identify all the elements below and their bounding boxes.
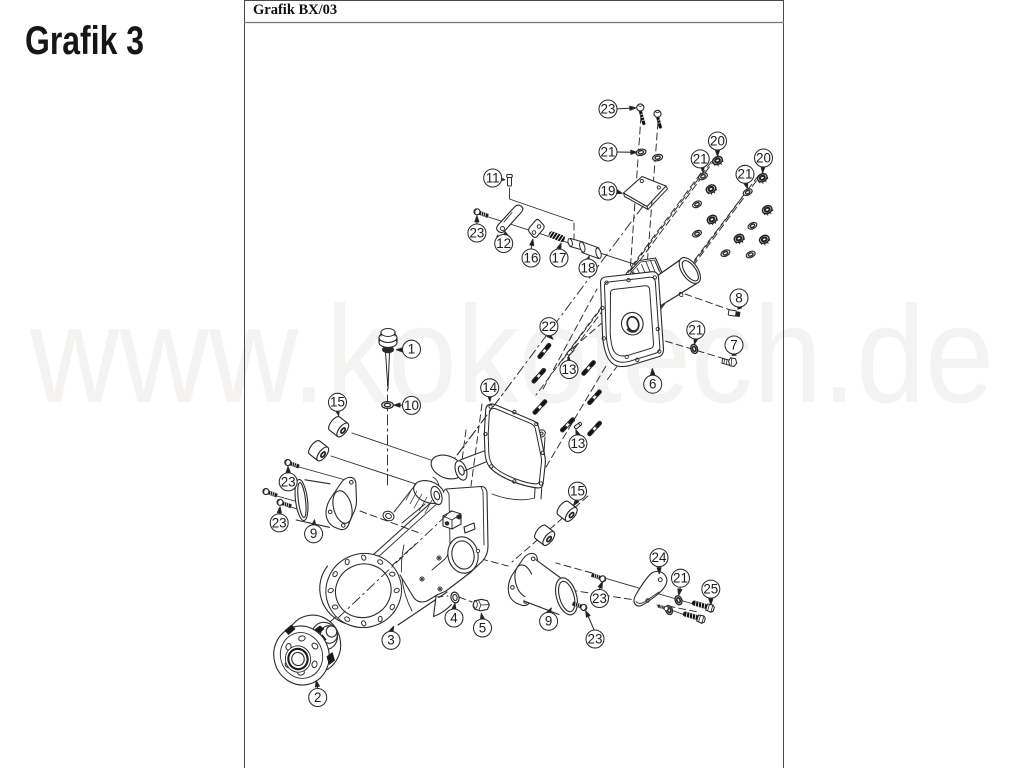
svg-text:21: 21 (688, 322, 703, 337)
svg-text:21: 21 (693, 151, 708, 166)
svg-text:9: 9 (545, 614, 552, 629)
svg-text:Grafik BX/03: Grafik BX/03 (253, 2, 337, 18)
svg-text:21: 21 (738, 167, 753, 182)
svg-text:16: 16 (524, 250, 539, 265)
svg-text:13: 13 (570, 436, 585, 451)
svg-text:14: 14 (482, 380, 497, 395)
svg-text:20: 20 (756, 150, 771, 165)
svg-text:24: 24 (652, 550, 667, 565)
svg-text:3: 3 (387, 633, 394, 648)
svg-text:5: 5 (479, 620, 486, 635)
svg-text:20: 20 (710, 133, 725, 148)
svg-text:23: 23 (601, 101, 616, 116)
svg-text:15: 15 (570, 484, 585, 499)
svg-text:23: 23 (281, 474, 296, 489)
svg-text:18: 18 (581, 260, 596, 275)
svg-text:23: 23 (469, 225, 484, 240)
svg-text:17: 17 (552, 250, 567, 265)
svg-text:6: 6 (649, 377, 656, 392)
svg-text:22: 22 (541, 319, 556, 334)
svg-text:12: 12 (496, 236, 511, 251)
svg-text:8: 8 (735, 290, 742, 305)
svg-text:10: 10 (404, 398, 419, 413)
svg-text:11: 11 (486, 170, 500, 185)
svg-text:21: 21 (601, 144, 616, 159)
svg-text:7: 7 (730, 337, 737, 352)
svg-text:2: 2 (314, 690, 321, 705)
svg-text:23: 23 (588, 631, 603, 646)
svg-text:25: 25 (703, 582, 718, 597)
svg-text:15: 15 (330, 395, 345, 410)
svg-text:4: 4 (450, 610, 458, 625)
svg-text:www.kokotech.de: www.kokotech.de (29, 278, 994, 432)
svg-text:Grafik 3: Grafik 3 (25, 19, 144, 63)
svg-text:21: 21 (673, 571, 688, 586)
svg-text:23: 23 (272, 515, 287, 530)
svg-text:9: 9 (310, 526, 317, 541)
svg-text:13: 13 (562, 362, 577, 377)
svg-text:1: 1 (408, 342, 415, 357)
svg-text:19: 19 (601, 183, 616, 198)
svg-text:23: 23 (592, 591, 607, 606)
